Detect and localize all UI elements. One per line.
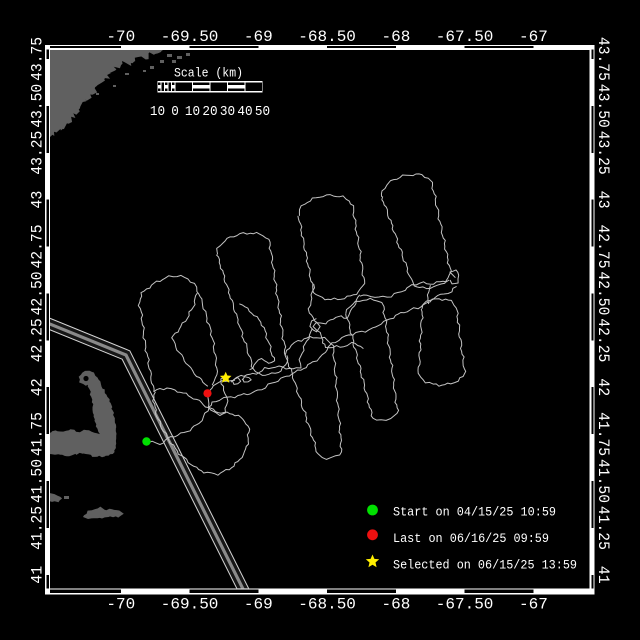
svg-text:41.75: 41.75 [28,412,46,456]
svg-text:Start on 04/15/25 10:59: Start on 04/15/25 10:59 [393,505,556,520]
svg-text:43.25: 43.25 [28,131,46,175]
svg-text:43: 43 [28,191,46,209]
svg-text:41.25: 41.25 [594,506,612,550]
svg-text:-69.50: -69.50 [161,596,219,614]
svg-text:10: 10 [150,105,165,120]
svg-text:10: 10 [185,105,200,120]
svg-text:-67: -67 [519,596,548,614]
svg-text:42.75: 42.75 [594,225,612,269]
svg-text:-68.50: -68.50 [298,28,356,46]
svg-text:-69: -69 [244,596,273,614]
svg-text:-70: -70 [106,28,135,46]
svg-text:41.75: 41.75 [594,412,612,456]
svg-text:-69: -69 [244,28,273,46]
svg-text:42.75: 42.75 [28,225,46,269]
svg-text:-68: -68 [381,28,410,46]
svg-text:42: 42 [594,378,612,396]
svg-text:41.50: 41.50 [28,459,46,503]
svg-text:43.50: 43.50 [28,84,46,128]
svg-text:Scale (km): Scale (km) [174,66,243,81]
svg-text:Last on 06/16/25 09:59: Last on 06/16/25 09:59 [393,531,549,546]
svg-text:-67: -67 [519,28,548,46]
svg-text:42.50: 42.50 [594,271,612,315]
svg-text:-68.50: -68.50 [298,596,356,614]
svg-text:42.50: 42.50 [28,271,46,315]
svg-text:41: 41 [28,566,46,584]
svg-text:43: 43 [594,191,612,209]
svg-text:50: 50 [255,105,270,120]
svg-text:40: 40 [237,105,252,120]
svg-text:41.50: 41.50 [594,459,612,503]
svg-text:Selected on 06/15/25 13:59: Selected on 06/15/25 13:59 [393,557,577,572]
svg-text:0: 0 [171,105,179,120]
svg-text:42.25: 42.25 [28,318,46,362]
svg-text:20: 20 [202,105,217,120]
svg-text:30: 30 [220,105,235,120]
svg-text:-70: -70 [106,596,135,614]
svg-text:43.75: 43.75 [594,37,612,81]
svg-text:43.50: 43.50 [594,84,612,128]
svg-text:-67.50: -67.50 [436,596,494,614]
svg-text:42.25: 42.25 [594,318,612,362]
svg-text:43.75: 43.75 [28,37,46,81]
svg-text:41.25: 41.25 [28,506,46,550]
svg-text:-69.50: -69.50 [161,28,219,46]
svg-text:42: 42 [28,378,46,396]
svg-text:-67.50: -67.50 [436,28,494,46]
svg-text:43.25: 43.25 [594,131,612,175]
svg-text:41: 41 [594,566,612,584]
svg-text:-68: -68 [381,596,410,614]
